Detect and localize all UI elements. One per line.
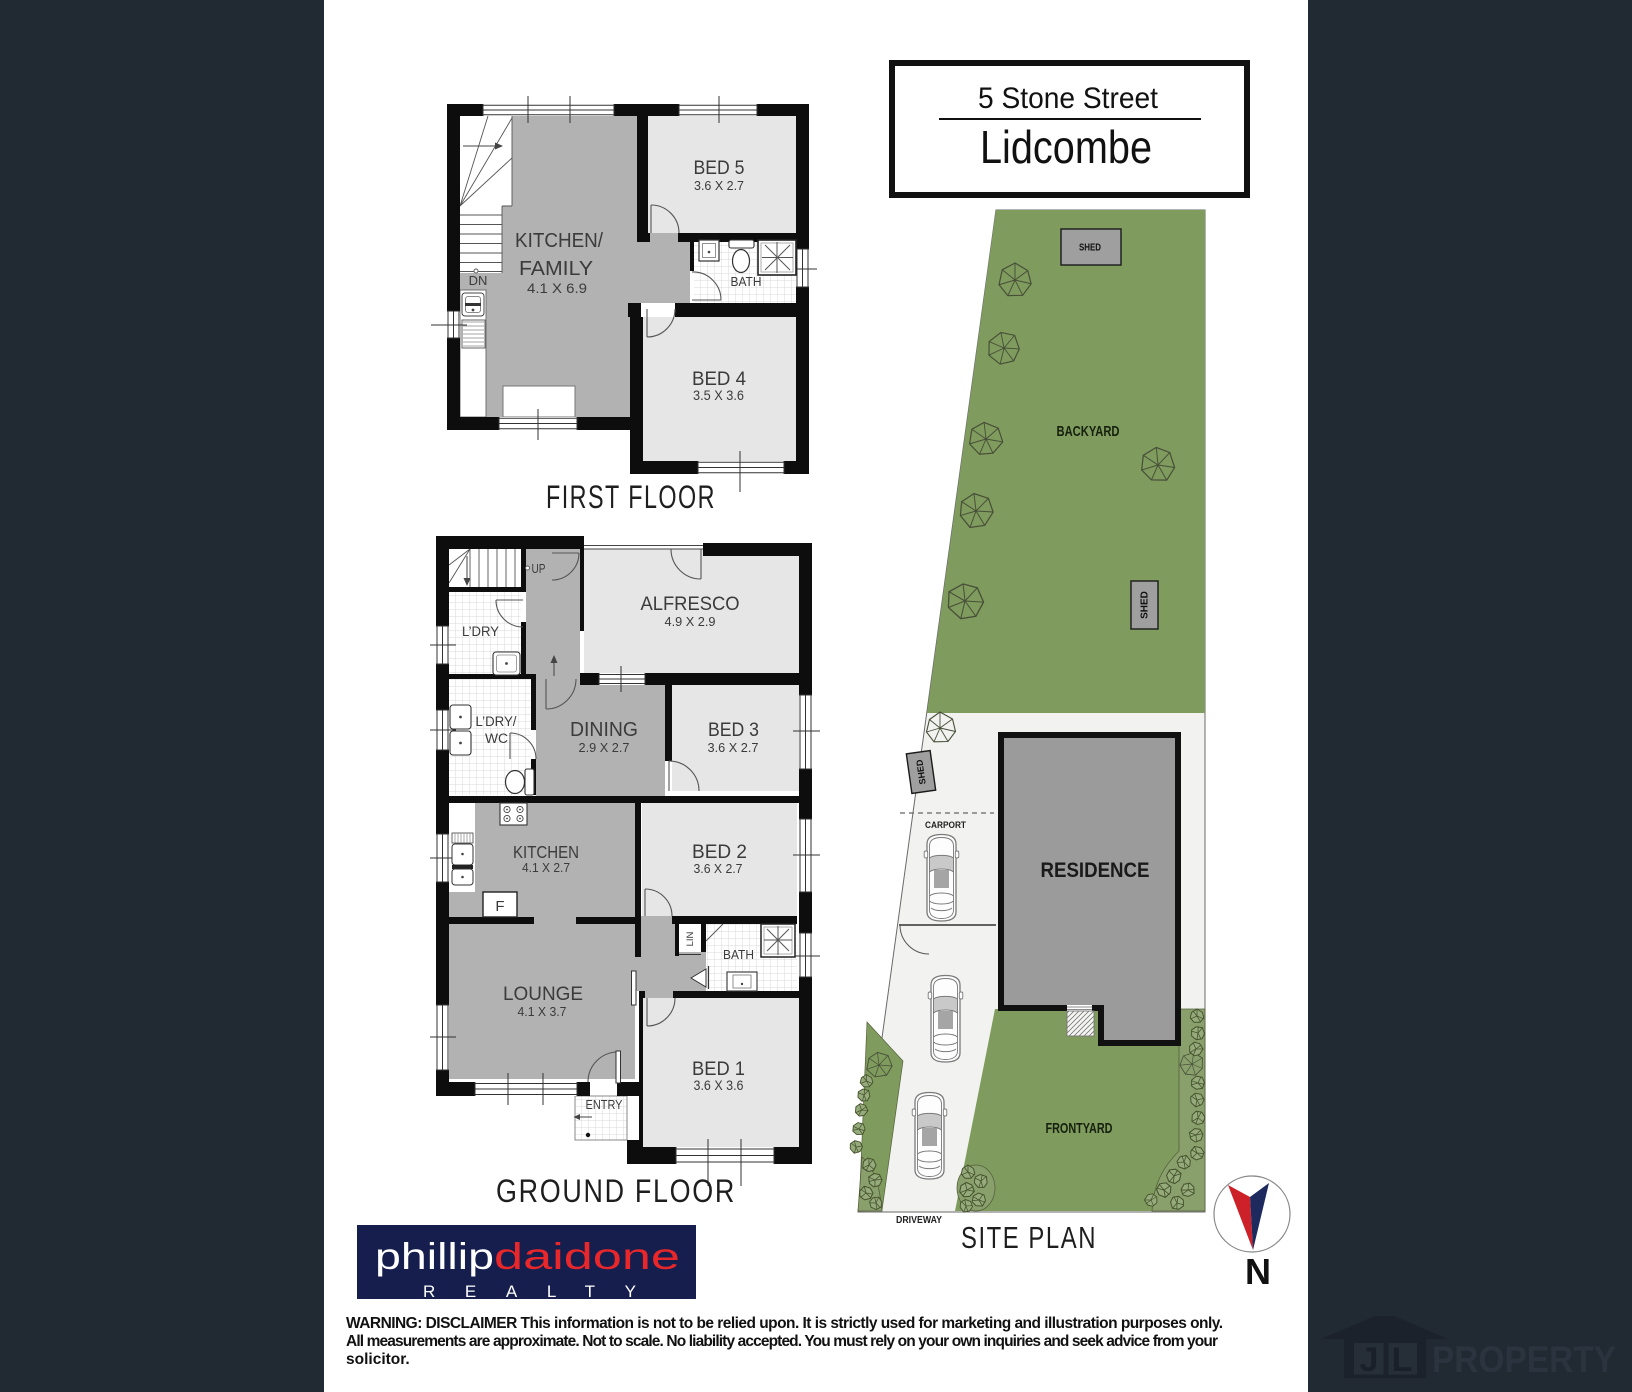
svg-text:BATH: BATH: [731, 275, 762, 289]
svg-text:3.5 X 3.6: 3.5 X 3.6: [693, 388, 744, 403]
svg-text:BED 2: BED 2: [692, 841, 747, 863]
svg-text:DRIVEWAY: DRIVEWAY: [896, 1215, 942, 1226]
svg-text:solicitor.: solicitor.: [346, 1351, 410, 1368]
svg-text:4.1 X 6.9: 4.1 X 6.9: [527, 281, 587, 296]
svg-text:3.6 X 2.7: 3.6 X 2.7: [708, 740, 759, 755]
svg-text:3.6 X 3.6: 3.6 X 3.6: [694, 1078, 744, 1093]
svg-text:4.9 X 2.9: 4.9 X 2.9: [665, 614, 716, 629]
svg-text:WC: WC: [485, 731, 508, 746]
svg-text:2.9 X 2.7: 2.9 X 2.7: [579, 740, 630, 755]
svg-text:GROUND FLOOR: GROUND FLOOR: [496, 1173, 736, 1209]
svg-text:All measurements are approxima: All measurements are approximate. Not to…: [346, 1333, 1218, 1350]
svg-text:SHED: SHED: [1079, 243, 1101, 254]
svg-text:BED 5: BED 5: [694, 158, 745, 179]
svg-text:SITE PLAN: SITE PLAN: [961, 1220, 1097, 1255]
svg-text:KITCHEN/: KITCHEN/: [515, 230, 603, 252]
svg-text:WARNING: DISCLAIMER This infor: WARNING: DISCLAIMER This information is …: [346, 1315, 1223, 1332]
svg-text:FIRST FLOOR: FIRST FLOOR: [546, 479, 716, 515]
svg-text:N: N: [1245, 1251, 1271, 1292]
svg-text:FRONTYARD: FRONTYARD: [1046, 1120, 1113, 1137]
svg-text:LIN: LIN: [685, 931, 696, 946]
svg-text:3.6 X 2.7: 3.6 X 2.7: [694, 178, 744, 193]
svg-text:daidone: daidone: [494, 1236, 680, 1277]
svg-text:LOUNGE: LOUNGE: [503, 983, 583, 1005]
svg-text:KITCHEN: KITCHEN: [513, 842, 579, 862]
svg-text:L’DRY/: L’DRY/: [476, 714, 517, 729]
svg-text:4.1 X 3.7: 4.1 X 3.7: [518, 1004, 567, 1019]
svg-text:phillip: phillip: [375, 1236, 494, 1277]
svg-text:FAMILY: FAMILY: [519, 258, 593, 280]
svg-text:CARPORT: CARPORT: [925, 820, 966, 831]
svg-text:ENTRY: ENTRY: [586, 1097, 623, 1112]
svg-text:3.6 X 2.7: 3.6 X 2.7: [694, 861, 743, 876]
svg-text:L’DRY: L’DRY: [462, 624, 499, 639]
svg-text:F: F: [495, 898, 504, 915]
svg-text:PROPERTY: PROPERTY: [1432, 1339, 1616, 1380]
svg-text:DINING: DINING: [570, 719, 638, 741]
svg-text:DN: DN: [469, 273, 488, 288]
svg-text:BATH: BATH: [723, 947, 754, 962]
svg-text:SHED: SHED: [1140, 591, 1151, 619]
svg-text:ALFRESCO: ALFRESCO: [641, 593, 740, 615]
svg-text:5 Stone Street: 5 Stone Street: [978, 82, 1159, 115]
svg-text:BED 4: BED 4: [692, 368, 746, 390]
svg-text:L: L: [1392, 1341, 1413, 1379]
svg-text:BED 1: BED 1: [692, 1058, 745, 1080]
svg-text:BACKYARD: BACKYARD: [1057, 423, 1120, 440]
svg-text:Lidcombe: Lidcombe: [980, 121, 1152, 173]
svg-text:UP: UP: [532, 562, 546, 576]
svg-text:4.1 X 2.7: 4.1 X 2.7: [522, 861, 570, 875]
svg-text:RESIDENCE: RESIDENCE: [1041, 859, 1150, 882]
svg-text:BED 3: BED 3: [708, 719, 759, 741]
svg-text:J: J: [1360, 1341, 1379, 1379]
